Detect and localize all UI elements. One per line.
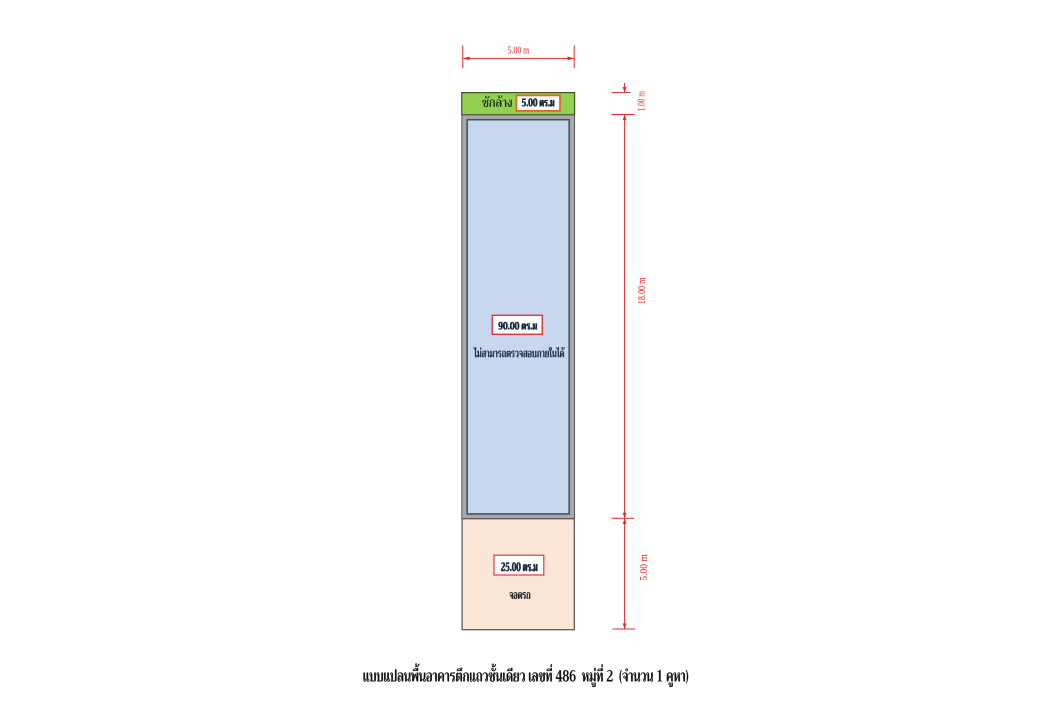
svg-text:5.00 m: 5.00 m — [639, 554, 650, 581]
svg-text:5.00 m: 5.00 m — [508, 45, 530, 56]
svg-text:1.00 m: 1.00 m — [636, 91, 647, 111]
svg-text:18.00 m: 18.00 m — [637, 278, 648, 305]
